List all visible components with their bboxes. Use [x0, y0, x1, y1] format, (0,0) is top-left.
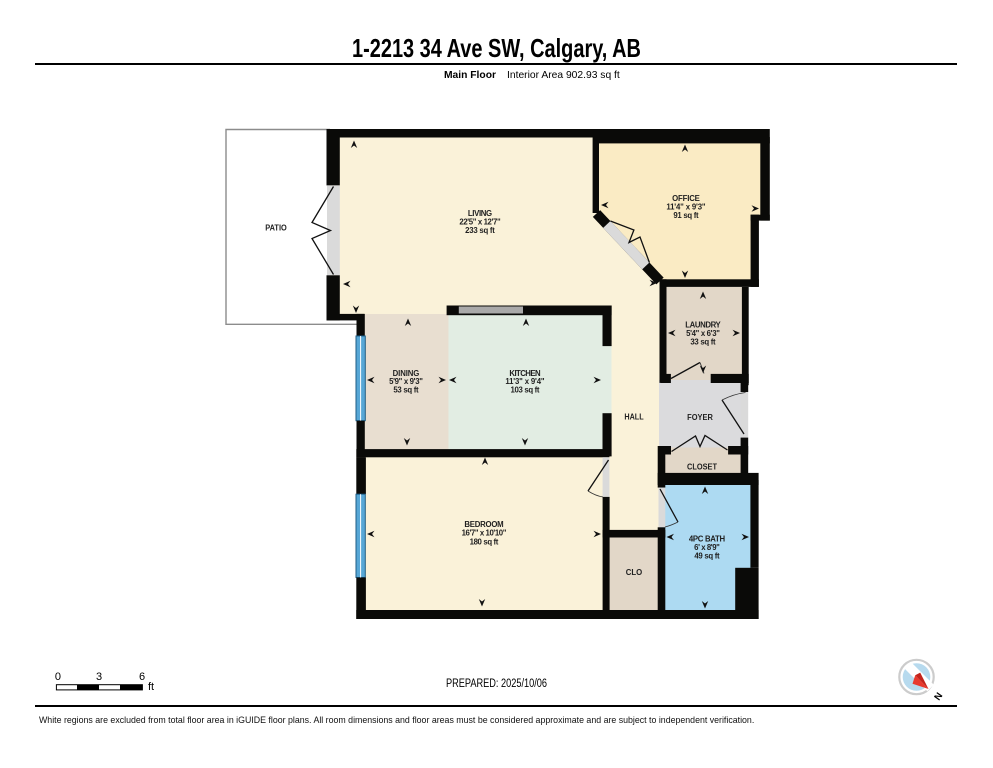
svg-text:103 sq ft: 103 sq ft — [511, 385, 540, 394]
svg-text:CLO: CLO — [626, 568, 643, 577]
svg-text:53 sq ft: 53 sq ft — [393, 385, 419, 394]
svg-text:33 sq ft: 33 sq ft — [690, 337, 716, 346]
svg-text:91 sq ft: 91 sq ft — [673, 211, 699, 220]
svg-text:FOYER: FOYER — [687, 413, 713, 422]
svg-text:49 sq ft: 49 sq ft — [694, 551, 720, 560]
svg-text:PATIO: PATIO — [265, 224, 287, 233]
svg-text:180 sq ft: 180 sq ft — [470, 537, 499, 546]
svg-text:0: 0 — [55, 671, 61, 683]
svg-text:233 sq ft: 233 sq ft — [465, 226, 495, 235]
svg-text:N: N — [931, 690, 944, 702]
svg-text:BEDROOM: BEDROOM — [464, 520, 503, 529]
svg-text:CLOSET: CLOSET — [687, 463, 717, 472]
svg-text:HALL: HALL — [624, 412, 644, 421]
